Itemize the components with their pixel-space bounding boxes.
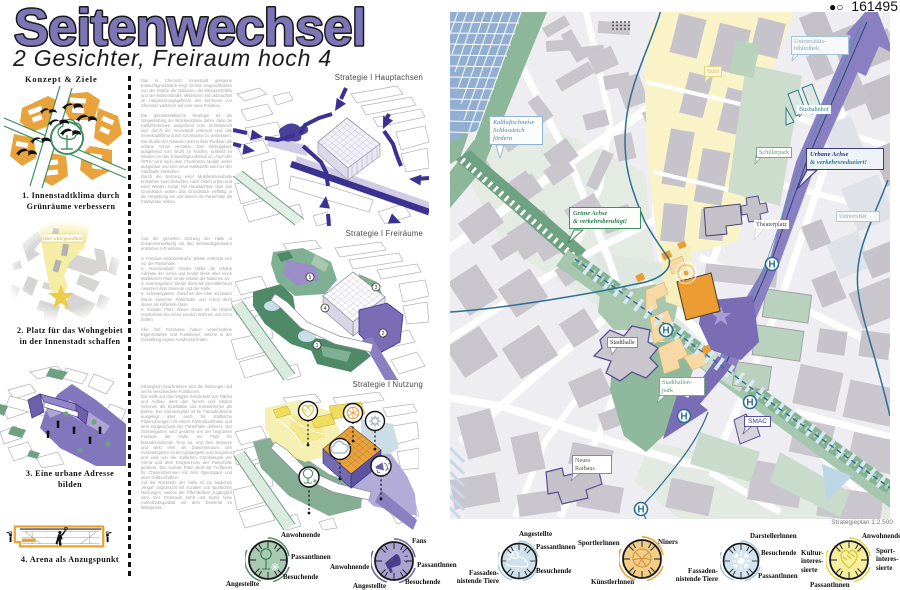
svg-text:H: H	[680, 412, 687, 423]
svg-text:1: 1	[316, 343, 319, 349]
svg-text:3: 3	[375, 285, 378, 291]
svg-text:H: H	[662, 326, 669, 337]
svg-text:H: H	[746, 398, 753, 409]
svg-text:2: 2	[382, 331, 385, 337]
svg-text:H: H	[768, 260, 775, 271]
svg-text:H: H	[637, 505, 644, 516]
svg-text:5: 5	[309, 275, 312, 281]
svg-text:4: 4	[324, 306, 327, 312]
